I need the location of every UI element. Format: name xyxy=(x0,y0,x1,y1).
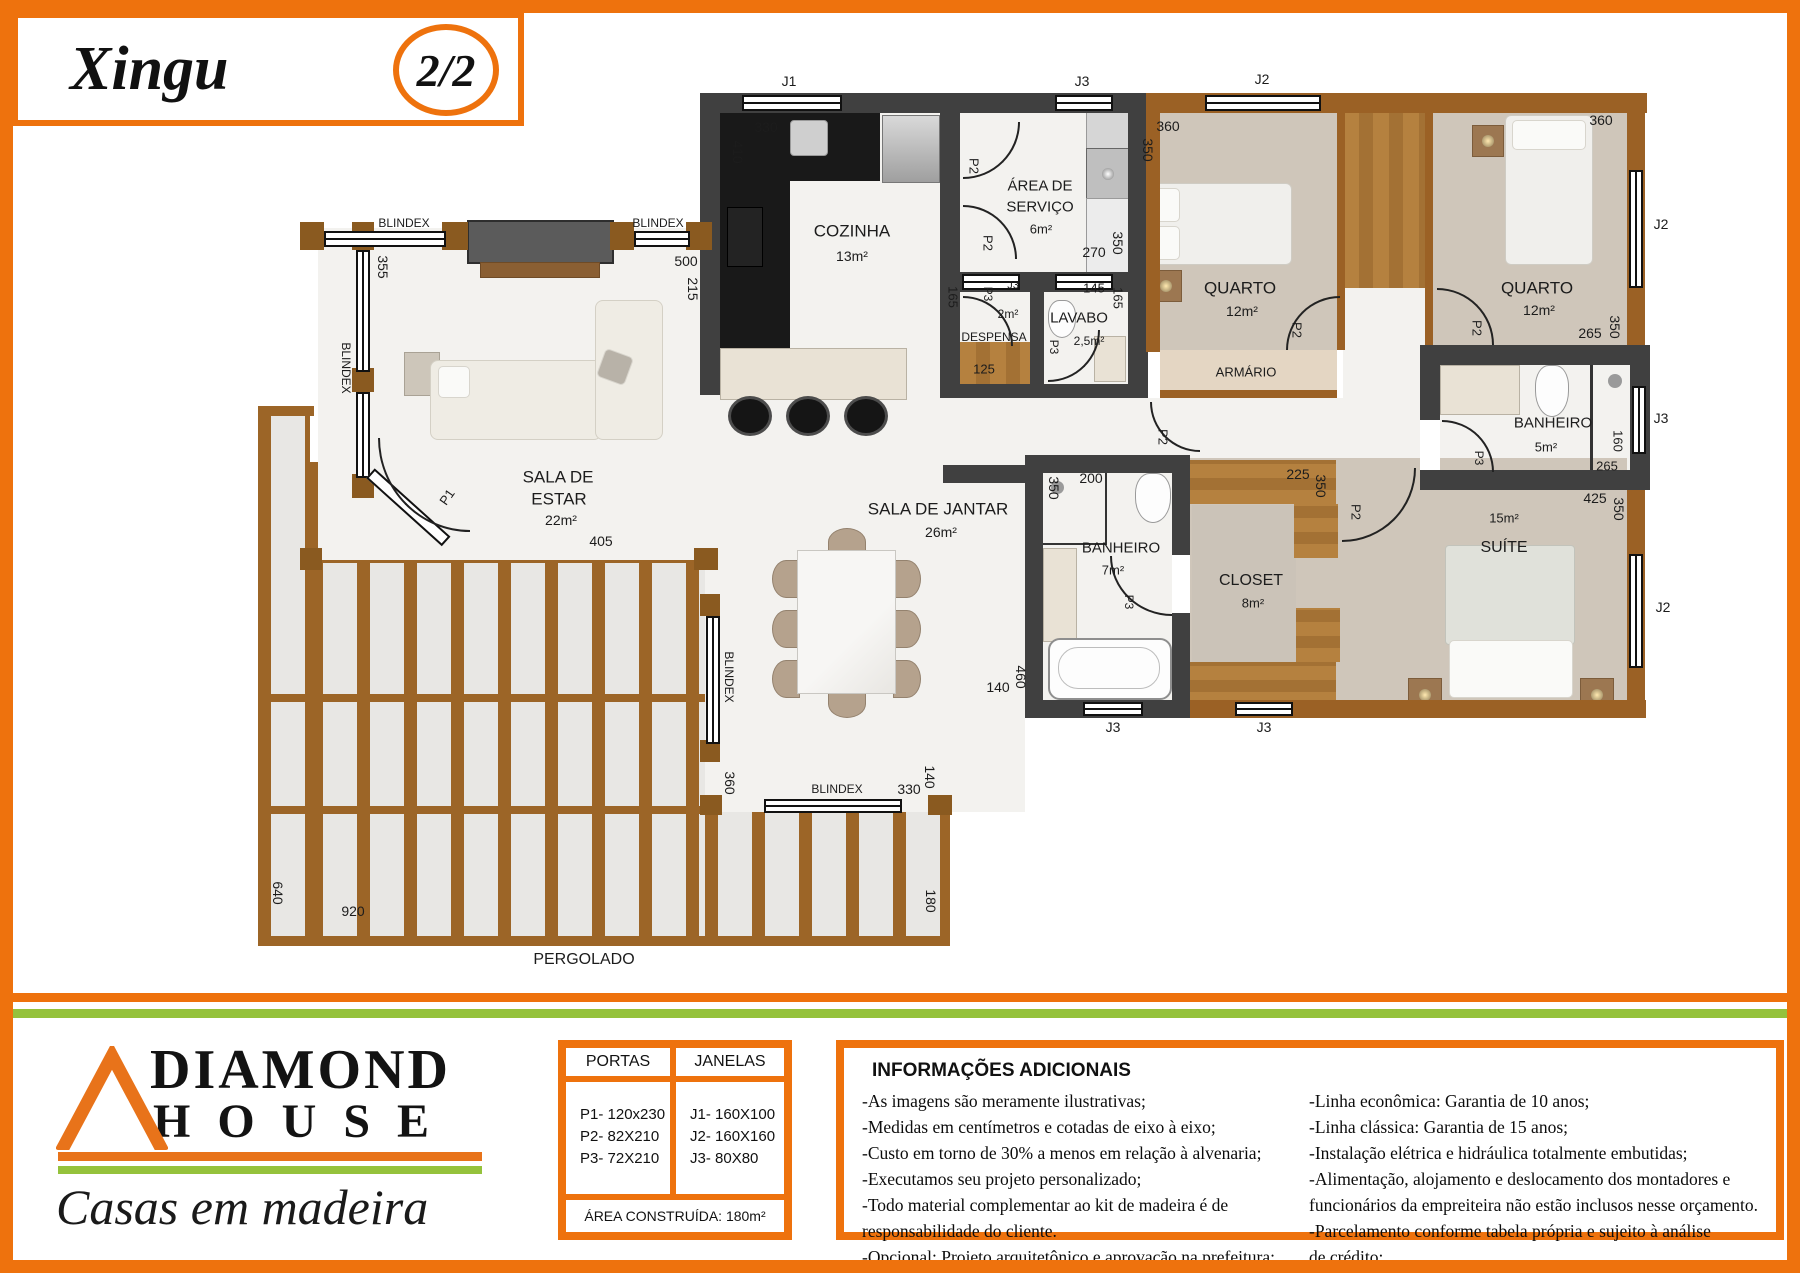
closet-wardrobe xyxy=(1294,504,1338,558)
portas-header-label: PORTAS xyxy=(586,1053,650,1071)
plan-label-p2: P2 xyxy=(1157,429,1170,445)
plan-label-p2: P2 xyxy=(1471,320,1484,336)
blindex-window xyxy=(706,616,720,744)
plan-label-servi-o: SERVIÇO xyxy=(1006,200,1073,215)
window-j1 xyxy=(742,95,842,111)
info-line: -Executamos seu projeto personalizado; xyxy=(862,1166,1275,1192)
info-column-right: -Linha econômica: Garantia de 10 anos;-L… xyxy=(1309,1088,1758,1270)
lamp-icon xyxy=(1160,280,1172,292)
dining-chair xyxy=(772,560,800,598)
bathroom7-toilet xyxy=(1135,473,1171,523)
plan-label-p3: P3 xyxy=(1473,451,1485,466)
dining-chair xyxy=(893,610,921,648)
brand-rule-green xyxy=(58,1166,482,1174)
plan-label-410: 410 xyxy=(731,140,745,163)
entry-wood-floor xyxy=(1343,113,1427,288)
window-j2 xyxy=(1205,95,1321,111)
plan-label-640: 640 xyxy=(271,881,285,904)
plan-label-quarto: QUARTO xyxy=(1204,280,1276,297)
porta-item: P1- 120x230 xyxy=(580,1104,670,1126)
bathtub-inner xyxy=(1058,647,1160,689)
plan-label-12m-: 12m² xyxy=(1523,303,1555,317)
plan-label-p3: P3 xyxy=(1123,595,1135,610)
brand-name-line2: HOUSE xyxy=(153,1094,456,1149)
floorplan-sheet: Xingu 2/2 xyxy=(0,0,1800,1273)
plan-label-despensa: DESPENSA xyxy=(961,331,1026,343)
plan-label-350: 350 xyxy=(1047,476,1061,499)
plan-label-6m-: 6m² xyxy=(1030,223,1052,236)
pergolado-slats xyxy=(705,812,950,945)
sofa-pillow xyxy=(438,366,470,398)
plan-label-j2: J2 xyxy=(1654,217,1669,231)
blindex-window xyxy=(356,250,370,372)
plan-label-lavabo: LAVABO xyxy=(1050,311,1108,326)
closet-wardrobe xyxy=(1296,608,1340,662)
plan-label-22m-: 22m² xyxy=(545,513,577,527)
plan-label-13m-: 13m² xyxy=(836,249,868,263)
plan-label-j3: J3 xyxy=(1007,281,1019,292)
bar-stool xyxy=(728,396,772,436)
plan-label-270: 270 xyxy=(1082,245,1105,259)
plan-label-su-te: SUÍTE xyxy=(1480,540,1527,556)
plan-label-j2: J2 xyxy=(1255,72,1270,86)
wall-post xyxy=(300,222,324,250)
janelas-header-label: JANELAS xyxy=(694,1053,765,1071)
plan-label-360: 360 xyxy=(723,771,737,794)
plan-label-p2: P2 xyxy=(982,235,995,251)
wall-segment xyxy=(960,93,1148,113)
refrigerator xyxy=(882,115,940,183)
bathtub xyxy=(1048,638,1172,700)
suite-bed-blanket xyxy=(1445,545,1575,645)
pergolado-post xyxy=(694,548,718,570)
plan-label-265: 265 xyxy=(1596,460,1618,473)
info-line: funcionários da empreiteira não estão in… xyxy=(1309,1192,1758,1218)
plan-label-330: 330 xyxy=(754,120,777,134)
plan-label-blindex: BLINDEX xyxy=(723,651,735,702)
plan-label-p2: P2 xyxy=(1291,322,1304,338)
plan-label-12m-: 12m² xyxy=(1226,304,1258,318)
separator-green xyxy=(12,1009,1788,1018)
stove xyxy=(727,207,763,267)
blindex-window xyxy=(356,392,370,478)
wall-segment xyxy=(1128,93,1148,292)
wall-segment xyxy=(1420,345,1650,365)
dining-chair xyxy=(828,690,866,718)
plan-label-blindex: BLINDEX xyxy=(378,217,429,229)
plan-label-15m-: 15m² xyxy=(1489,512,1519,525)
door-opening xyxy=(1420,420,1440,470)
area-construida-row: ÁREA CONSTRUÍDA: 180m² xyxy=(566,1200,784,1232)
plan-label-360: 360 xyxy=(1156,119,1179,133)
plan-label-2-5m-: 2,5m² xyxy=(1074,335,1105,347)
plan-label-sala-de-jantar: SALA DE JANTAR xyxy=(868,501,1008,518)
wall-segment xyxy=(940,93,960,292)
dining-chair xyxy=(772,660,800,698)
plan-label-j3: J3 xyxy=(1106,720,1121,734)
plan-label-j1: J1 xyxy=(782,74,797,88)
plan-label-180: 180 xyxy=(924,889,938,912)
porta-item: P2- 82X210 xyxy=(580,1126,670,1148)
pergolado-beam xyxy=(258,694,705,702)
blindex-window xyxy=(764,799,902,813)
wall-segment xyxy=(1025,455,1190,473)
info-line: -Parcelamento conforme tabela própria e … xyxy=(1309,1218,1758,1244)
porta-item: P3- 72X210 xyxy=(580,1148,670,1170)
janela-item: J2- 160X160 xyxy=(690,1126,784,1148)
plan-label-460: 460 xyxy=(1014,665,1028,688)
bathroom7-vanity xyxy=(1043,548,1077,642)
nightstand xyxy=(1472,125,1504,157)
info-line: -Todo material complementar ao kit de ma… xyxy=(862,1192,1275,1218)
plan-label-8m-: 8m² xyxy=(1242,597,1264,610)
plan-label-350: 350 xyxy=(1612,497,1626,520)
plan-label--rea-de: ÁREA DE xyxy=(1007,179,1072,194)
plan-label-125: 125 xyxy=(973,363,995,376)
info-line: -Alimentação, alojamento e deslocamento … xyxy=(1309,1166,1758,1192)
suite-bed-pillows xyxy=(1449,640,1573,698)
plan-label-p2: P2 xyxy=(1350,504,1363,520)
plan-label-350: 350 xyxy=(1111,231,1125,254)
plan-label-160: 160 xyxy=(1612,430,1625,452)
washer-door xyxy=(1102,168,1114,180)
wall-post xyxy=(928,795,952,815)
plan-label-sala-de: SALA DE xyxy=(523,469,594,486)
plan-label-estar: ESTAR xyxy=(531,491,586,508)
janelas-list: J1- 160X100J2- 160X160J3- 80X80 xyxy=(676,1082,784,1194)
plan-label-350: 350 xyxy=(1141,138,1155,161)
plan-label-360: 360 xyxy=(1589,113,1612,127)
pergolado-slats xyxy=(310,555,705,945)
plan-label-200: 200 xyxy=(1079,471,1102,485)
logo-triangle-icon xyxy=(56,1046,168,1150)
wall-segment xyxy=(1030,292,1044,398)
bar-stool xyxy=(786,396,830,436)
dining-chair xyxy=(893,560,921,598)
legend-header-janelas: JANELAS xyxy=(676,1048,784,1076)
info-line: -Linha clássica: Garantia de 15 anos; xyxy=(1309,1114,1758,1140)
plan-label-140: 140 xyxy=(923,765,937,788)
area-construida-label: ÁREA CONSTRUÍDA: 180m² xyxy=(584,1208,765,1224)
plan-label-425: 425 xyxy=(1583,491,1606,505)
plan-label-265: 265 xyxy=(1578,326,1601,340)
pergolado-beam xyxy=(258,936,950,946)
wall-post xyxy=(700,795,722,815)
blindex-window xyxy=(634,231,690,247)
separator-orange xyxy=(12,993,1788,1002)
wall-segment xyxy=(1172,455,1190,555)
info-column-left: -As imagens são meramente ilustrativas;-… xyxy=(862,1088,1275,1270)
info-line: -Linha econômica: Garantia de 10 anos; xyxy=(1309,1088,1758,1114)
plan-label-cozinha: COZINHA xyxy=(814,223,891,240)
wall-post xyxy=(700,594,720,616)
info-line: -Opcional: Projeto arquitetônico e aprov… xyxy=(862,1244,1275,1270)
lamp-icon xyxy=(1482,135,1494,147)
pergolado-beam xyxy=(258,806,707,814)
shower-head xyxy=(1608,374,1622,388)
tv-shelf xyxy=(480,262,600,278)
plan-label-2m-: 2m² xyxy=(998,308,1019,320)
window-j3 xyxy=(1055,95,1113,111)
plan-label-j3: J3 xyxy=(1654,411,1669,425)
plan-label-j2: J2 xyxy=(1656,600,1671,614)
plan-label-215: 215 xyxy=(686,277,700,300)
window-j3 xyxy=(1083,702,1143,716)
blindex-window xyxy=(324,231,446,247)
brand-tagline: Casas em madeira xyxy=(56,1178,428,1236)
bathroom5-toilet xyxy=(1535,365,1569,417)
pergolado-slats xyxy=(258,410,310,945)
window-j3 xyxy=(1632,386,1646,454)
info-line: -As imagens são meramente ilustrativas; xyxy=(862,1088,1275,1114)
plan-label-500: 500 xyxy=(674,254,697,268)
window-j2 xyxy=(1629,554,1643,668)
plan-label-5m-: 5m² xyxy=(1535,441,1557,454)
window-j3 xyxy=(1235,702,1293,716)
janela-item: J3- 80X80 xyxy=(690,1148,784,1170)
info-line: -Instalação elétrica e hidráulica totalm… xyxy=(1309,1140,1758,1166)
plan-label-j3: J3 xyxy=(1257,720,1272,734)
wall-post xyxy=(610,222,634,250)
wall-segment xyxy=(940,384,1148,398)
plan-label-330: 330 xyxy=(897,782,920,796)
dining-table xyxy=(797,550,896,694)
plan-label-350: 350 xyxy=(1608,315,1622,338)
info-title: INFORMAÇÕES ADICIONAIS xyxy=(872,1060,1131,1082)
plan-label-p3: P3 xyxy=(982,287,994,302)
plan-label-blindex: BLINDEX xyxy=(632,217,683,229)
wood-wall xyxy=(1425,113,1433,350)
plan-label-blindex: BLINDEX xyxy=(340,342,352,393)
plan-label-p2: P2 xyxy=(968,158,981,174)
kitchen-sink xyxy=(790,120,828,156)
dining-chair xyxy=(893,660,921,698)
plan-label-140: 140 xyxy=(986,680,1009,694)
pillow xyxy=(1512,120,1586,150)
plan-label-165: 165 xyxy=(1112,287,1125,309)
bar-stool xyxy=(844,396,888,436)
info-line: de crédito; xyxy=(1309,1244,1758,1270)
plan-label-j3: J3 xyxy=(1075,74,1090,88)
janela-item: J1- 160X100 xyxy=(690,1104,784,1126)
brand-name-line1: DIAMOND xyxy=(150,1038,451,1102)
wardrobe-edge xyxy=(1160,390,1337,398)
tv-unit xyxy=(467,220,614,264)
pantry-wood-floor xyxy=(960,342,1030,384)
corridor-floor xyxy=(1343,288,1427,460)
portas-list: P1- 120x230P2- 82X210P3- 72X210 xyxy=(566,1082,670,1194)
plan-label-26m-: 26m² xyxy=(925,525,957,539)
plan-label-banheiro: BANHEIRO xyxy=(1514,416,1592,431)
page-number-badge: 2/2 xyxy=(393,24,499,116)
plan-label-405: 405 xyxy=(589,534,612,548)
plan-label-165: 165 xyxy=(947,286,960,308)
dining-chair xyxy=(772,610,800,648)
plan-label-350: 350 xyxy=(1314,474,1328,497)
title-box: Xingu 2/2 xyxy=(12,12,524,126)
info-line: -Custo em torno de 30% a menos em relaçã… xyxy=(862,1140,1275,1166)
plan-label-banheiro: BANHEIRO xyxy=(1082,541,1160,556)
washing-machine xyxy=(1086,148,1130,200)
plan-label-arm-rio: ARMÁRIO xyxy=(1216,366,1277,379)
kitchen-peninsula xyxy=(720,348,907,400)
plan-label-920: 920 xyxy=(341,904,364,918)
plan-label-145: 145 xyxy=(1083,282,1105,295)
pergolado-post xyxy=(300,548,322,570)
window-j2 xyxy=(1629,170,1643,288)
page-title: Xingu xyxy=(70,34,229,105)
brand-rule-orange xyxy=(58,1152,482,1161)
info-line: -Medidas em centímetros e cotadas de eix… xyxy=(862,1114,1275,1140)
info-line: responsabilidade do cliente. xyxy=(862,1218,1275,1244)
laundry-sink xyxy=(1086,112,1130,150)
plan-label-355: 355 xyxy=(376,255,390,278)
plan-label-blindex: BLINDEX xyxy=(811,783,862,795)
wall-segment xyxy=(1128,292,1148,398)
plan-label-closet: CLOSET xyxy=(1219,573,1283,589)
plan-label-7m-: 7m² xyxy=(1102,564,1124,577)
additional-info-box: INFORMAÇÕES ADICIONAIS -As imagens são m… xyxy=(836,1040,1784,1240)
legend-header-portas: PORTAS xyxy=(566,1048,670,1076)
plan-label-225: 225 xyxy=(1286,467,1309,481)
plan-label-pergolado: PERGOLADO xyxy=(533,952,634,968)
page-number: 2/2 xyxy=(417,44,476,97)
pergolado-beam xyxy=(258,406,314,416)
plan-label-quarto: QUARTO xyxy=(1501,280,1573,297)
plan-label-p3: P3 xyxy=(1048,340,1060,355)
bathroom5-vanity xyxy=(1440,365,1520,415)
